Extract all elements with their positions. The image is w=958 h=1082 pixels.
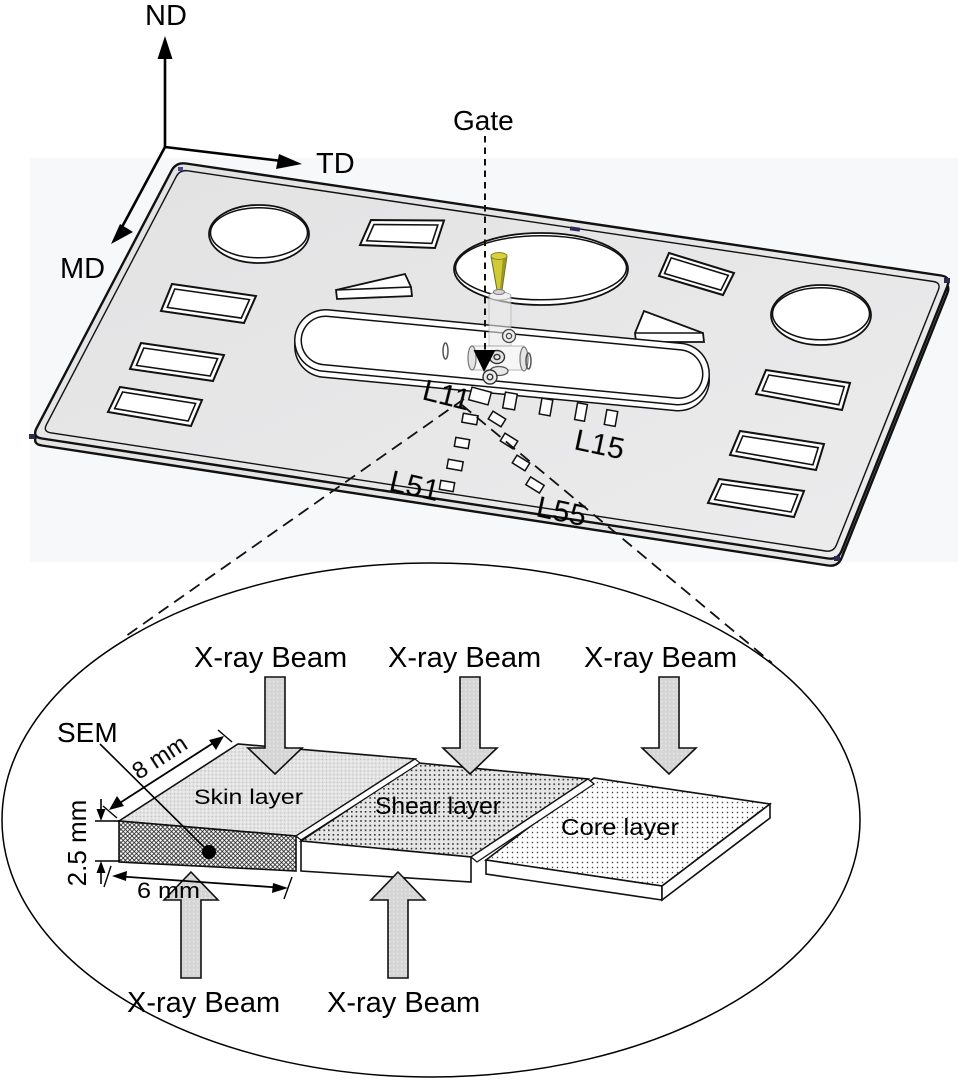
svg-text:X-ray Beam: X-ray Beam: [327, 987, 480, 1019]
svg-text:2.5 mm: 2.5 mm: [62, 800, 92, 887]
svg-text:TD: TD: [316, 148, 355, 180]
svg-text:Shear layer: Shear layer: [375, 793, 501, 820]
svg-text:X-ray Beam: X-ray Beam: [388, 642, 541, 674]
svg-text:MD: MD: [60, 253, 105, 285]
svg-text:X-ray Beam: X-ray Beam: [194, 642, 347, 674]
svg-text:X-ray Beam: X-ray Beam: [584, 642, 737, 674]
svg-text:Gate: Gate: [453, 105, 514, 136]
svg-text:ND: ND: [145, 0, 187, 32]
svg-text:Core layer: Core layer: [561, 814, 679, 840]
svg-text:SEM: SEM: [57, 717, 118, 748]
svg-text:X-ray Beam: X-ray Beam: [127, 987, 280, 1019]
svg-text:Skin layer: Skin layer: [194, 786, 303, 809]
